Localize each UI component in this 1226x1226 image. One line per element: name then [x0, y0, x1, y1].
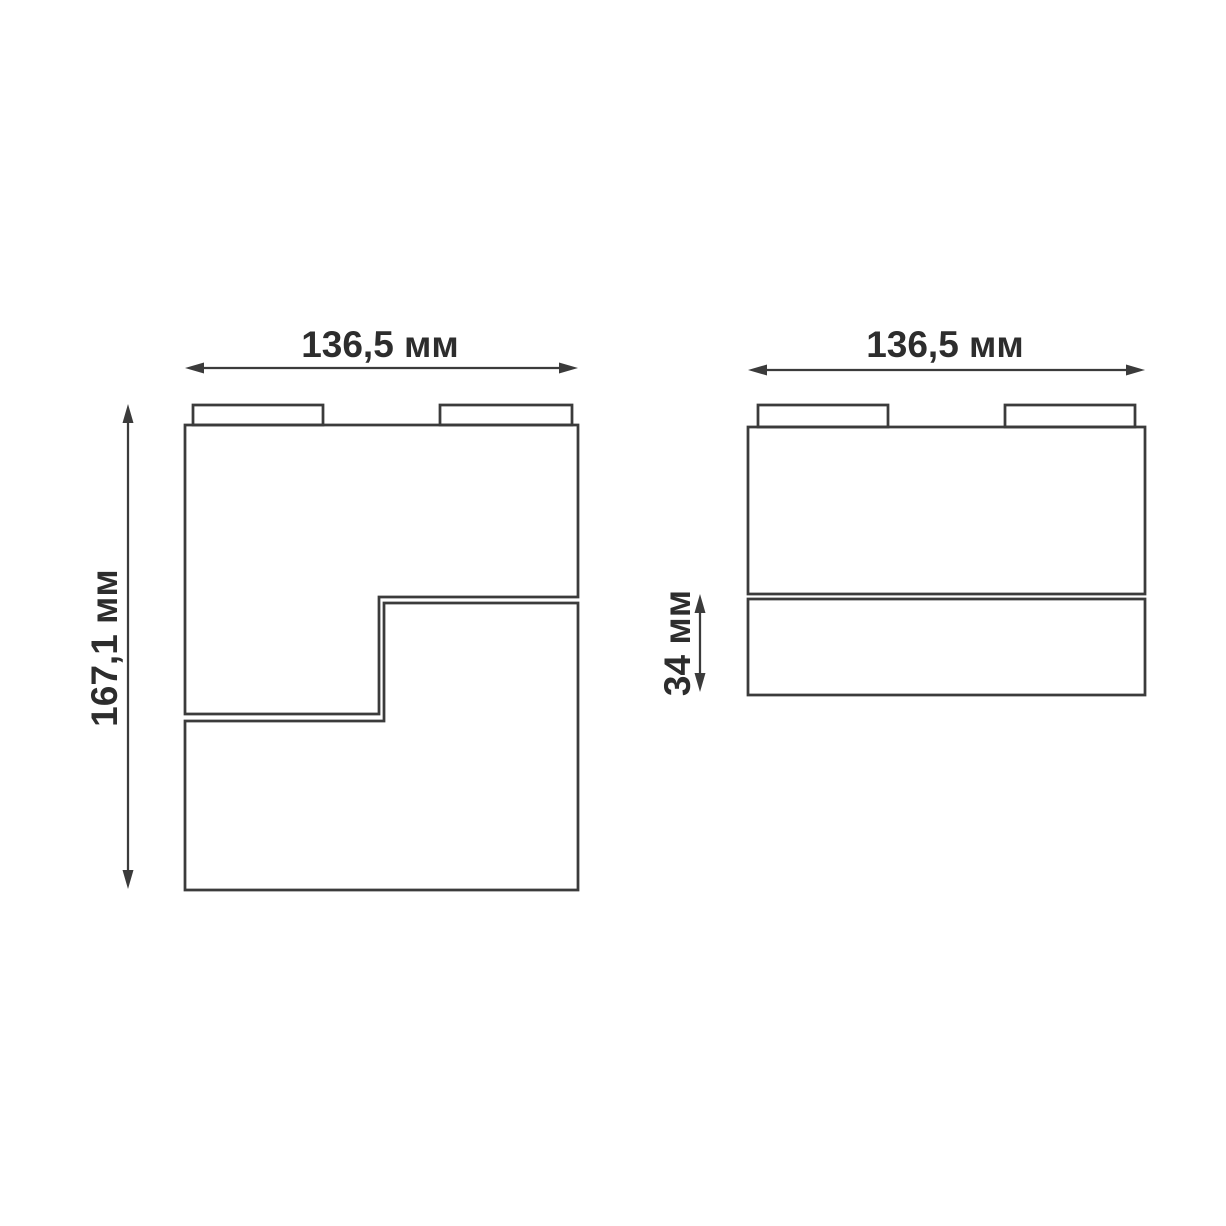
front-body-lower-outline [185, 603, 578, 890]
front-mount-tab-left [193, 405, 323, 425]
side-lower-height-dimension-label: 34 мм [657, 590, 698, 696]
side-width-dimension-arrow [748, 365, 1145, 376]
front-body-upper-outline [185, 425, 578, 714]
front-view: 136,5 мм 167,1 мм [84, 324, 578, 890]
front-height-arrowhead-top-icon [123, 404, 134, 423]
front-width-arrowhead-right-icon [559, 363, 578, 374]
front-width-dimension-label: 136,5 мм [301, 324, 459, 365]
front-height-dimension-label: 167,1 мм [84, 569, 125, 727]
front-height-arrowhead-bottom-icon [123, 870, 134, 889]
front-width-arrowhead-left-icon [185, 363, 204, 374]
side-width-arrowhead-left-icon [748, 365, 767, 376]
side-mount-tab-left [758, 405, 888, 427]
side-width-arrowhead-right-icon [1126, 365, 1145, 376]
side-width-dimension-label: 136,5 мм [866, 324, 1024, 365]
side-body-upper-outline [748, 427, 1145, 594]
side-body-lower-outline [748, 599, 1145, 695]
drawing-canvas: 136,5 мм 167,1 мм 13 [0, 0, 1226, 1226]
side-view: 136,5 мм 34 мм [657, 324, 1145, 696]
side-mount-tab-right [1005, 405, 1135, 427]
dimension-drawing: 136,5 мм 167,1 мм 13 [0, 0, 1226, 1226]
front-mount-tab-right [440, 405, 572, 425]
